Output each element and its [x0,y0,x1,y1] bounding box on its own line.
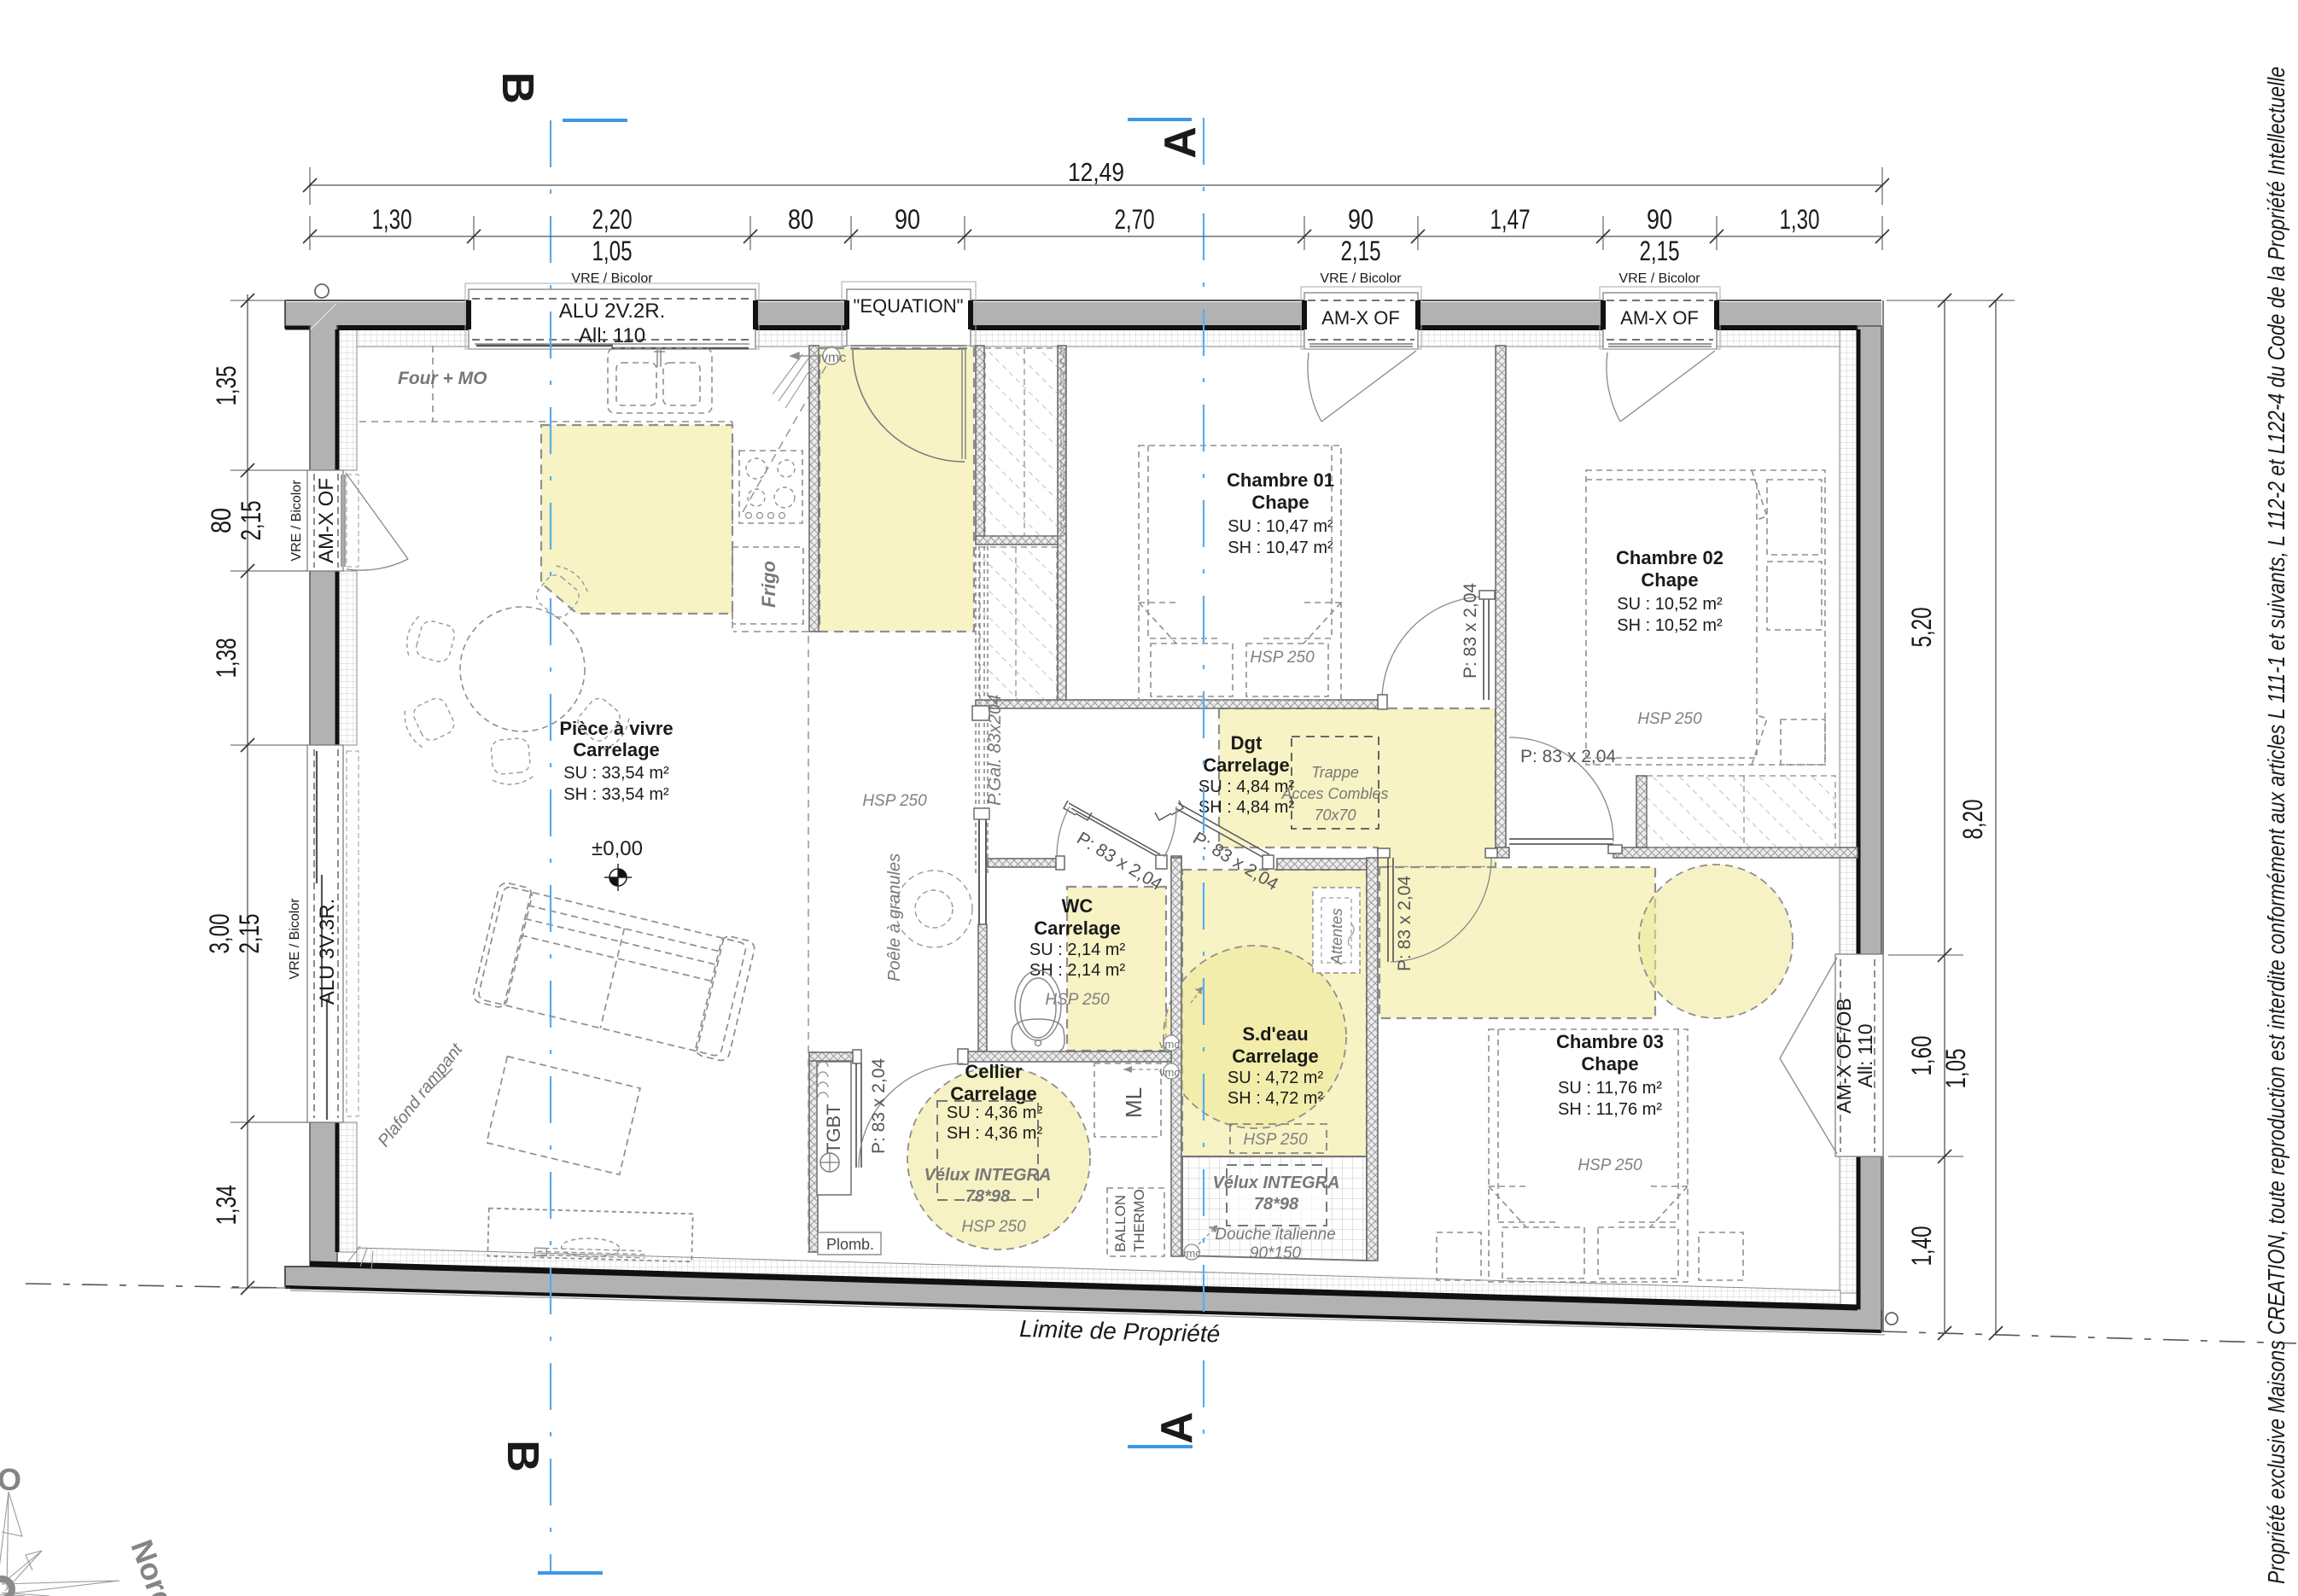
svg-text:SH : 10,47 m²: SH : 10,47 m² [1228,539,1333,557]
svg-text:vmc: vmc [821,351,846,365]
svg-text:A: A [1156,126,1205,159]
svg-text:VRE / Bicolor: VRE / Bicolor [1320,271,1402,286]
svg-text:VRE / Bicolor: VRE / Bicolor [288,898,302,980]
svg-text:P.Gal. 83x204: P.Gal. 83x204 [985,695,1005,806]
svg-text:Carrelage: Carrelage [573,739,660,760]
svg-text:Carrelage: Carrelage [1232,1046,1319,1067]
svg-text:All: 110: All: 110 [1854,1023,1876,1087]
svg-text:HSP 250: HSP 250 [1578,1156,1642,1174]
svg-text:Attentes: Attentes [1328,908,1345,965]
svg-text:2,15: 2,15 [1640,236,1680,266]
svg-text:Chape: Chape [1641,569,1698,591]
svg-text:1,35: 1,35 [211,366,242,406]
svg-text:Douche italienne: Douche italienne [1215,1226,1336,1244]
svg-text:ML: ML [1121,1087,1146,1118]
svg-text:78*98: 78*98 [965,1187,1011,1206]
svg-text:ALU 3V.3R.: ALU 3V.3R. [316,899,339,1005]
svg-text:Chape: Chape [1581,1053,1638,1075]
svg-text:All: 110: All: 110 [579,324,645,347]
svg-text:Four + MO: Four + MO [398,369,487,388]
svg-text:AM-X OF/OB: AM-X OF/OB [1833,998,1855,1113]
svg-text:2,70: 2,70 [1115,204,1155,235]
svg-text:vmc: vmc [1181,1247,1201,1260]
svg-text:Dgt: Dgt [1231,732,1263,754]
svg-text:SH : 10,52 m²: SH : 10,52 m² [1617,616,1723,635]
svg-text:Cellier: Cellier [965,1061,1023,1082]
svg-text:AM-X OF: AM-X OF [1321,307,1400,329]
svg-text:SH : 4,72 m²: SH : 4,72 m² [1228,1089,1324,1108]
svg-text:90: 90 [895,204,920,235]
svg-text:2,15: 2,15 [1341,236,1381,266]
svg-text:Propriété exclusive Maisons CR: Propriété exclusive Maisons CREATION, to… [2263,67,2289,1584]
svg-text:SU : 4,72 m²: SU : 4,72 m² [1228,1069,1324,1087]
svg-text:HSP 250: HSP 250 [1243,1131,1308,1149]
svg-text:12,49: 12,49 [1068,157,1124,187]
svg-text:vmc: vmc [1159,1066,1180,1079]
svg-text:SH : 4,84 m²: SH : 4,84 m² [1199,798,1295,817]
svg-text:SU : 10,52 m²: SU : 10,52 m² [1617,595,1723,614]
svg-text:1,47: 1,47 [1490,204,1531,235]
svg-text:B: B [493,72,542,104]
svg-text:Trappe: Trappe [1311,764,1359,781]
svg-text:Limite de Propriété: Limite de Propriété [1019,1315,1221,1348]
svg-text:B: B [498,1440,547,1472]
svg-text:5,20: 5,20 [1906,608,1937,648]
svg-text:HSP 250: HSP 250 [1250,649,1315,667]
svg-text:VRE / Bicolor: VRE / Bicolor [571,271,653,286]
svg-text:Chambre 01: Chambre 01 [1227,469,1334,491]
svg-text:Chape: Chape [1251,492,1309,513]
svg-text:1,60: 1,60 [1906,1036,1937,1076]
svg-text:Pièce à vivre: Pièce à vivre [559,718,673,739]
svg-text:SH : 33,54 m²: SH : 33,54 m² [563,785,669,804]
svg-text:90: 90 [1348,204,1374,235]
svg-text:Frigo: Frigo [758,561,779,608]
svg-text:"EQUATION": "EQUATION" [854,295,964,317]
svg-text:1,30: 1,30 [1780,204,1820,235]
svg-text:TGBT: TGBT [823,1104,844,1154]
svg-text:ALU 2V.2R.: ALU 2V.2R. [559,300,666,323]
svg-text:8,20: 8,20 [1957,800,1988,840]
svg-text:BALLON: BALLON [1112,1195,1129,1252]
svg-text:80: 80 [206,508,236,533]
svg-text:1,05: 1,05 [1940,1049,1971,1089]
svg-text:80: 80 [788,204,814,235]
svg-text:90: 90 [1647,204,1672,235]
svg-text:VRE / Bicolor: VRE / Bicolor [1619,271,1700,286]
svg-text:O: O [0,1462,21,1497]
svg-text:Carrelage: Carrelage [1034,917,1121,939]
svg-text:A: A [1152,1412,1202,1444]
svg-text:SH : 11,76 m²: SH : 11,76 m² [1558,1100,1662,1119]
svg-text:Plomb.: Plomb. [826,1236,874,1253]
svg-text:HSP 250: HSP 250 [961,1218,1026,1236]
svg-text:90*150: 90*150 [1250,1244,1302,1262]
svg-text:Acces Combles: Acces Combles [1280,785,1388,802]
svg-text:AM-X OF: AM-X OF [315,478,338,563]
svg-text:P: 83 x 2,04: P: 83 x 2,04 [1461,583,1480,679]
svg-text:1,30: 1,30 [372,204,412,235]
svg-text:78*98: 78*98 [1254,1195,1299,1214]
svg-text:Carrelage: Carrelage [1203,754,1290,776]
svg-text:Poêle à granules: Poêle à granules [885,853,904,981]
svg-text:1,40: 1,40 [1906,1226,1937,1267]
svg-text:SU : 10,47 m²: SU : 10,47 m² [1228,517,1333,536]
svg-text:Chambre 02: Chambre 02 [1616,547,1723,568]
svg-text:VRE / Bicolor: VRE / Bicolor [289,480,304,562]
svg-text:1,38: 1,38 [211,638,242,679]
svg-text:SU : 2,14 m²: SU : 2,14 m² [1029,941,1126,959]
svg-text:Vélux INTEGRA: Vélux INTEGRA [1213,1174,1340,1192]
svg-text:2,20: 2,20 [592,204,633,235]
svg-text:HSP 250: HSP 250 [1637,710,1702,728]
svg-text:1,34: 1,34 [211,1185,242,1226]
svg-text:P: 83 x 2,04: P: 83 x 2,04 [869,1058,889,1154]
svg-text:2,15: 2,15 [234,914,265,954]
svg-text:P: 83 x 2,04: P: 83 x 2,04 [1395,876,1414,971]
svg-text:70x70: 70x70 [1314,807,1356,824]
svg-text:SH : 2,14 m²: SH : 2,14 m² [1029,961,1126,980]
svg-text:Vélux INTEGRA: Vélux INTEGRA [924,1166,1052,1185]
svg-text:THERMO: THERMO [1131,1189,1147,1252]
svg-text:SU : 33,54 m²: SU : 33,54 m² [563,764,669,783]
svg-text:WC: WC [1062,895,1094,917]
svg-text:SU : 4,84 m²: SU : 4,84 m² [1199,778,1295,796]
svg-text:1,05: 1,05 [592,236,633,266]
svg-text:±0,00: ±0,00 [592,837,643,860]
svg-text:vmc: vmc [1159,1038,1180,1051]
svg-text:Chambre 03: Chambre 03 [1556,1031,1664,1052]
svg-text:AM-X OF: AM-X OF [1620,307,1699,329]
svg-text:SH : 4,36 m²: SH : 4,36 m² [947,1124,1043,1143]
svg-text:SU : 11,76 m²: SU : 11,76 m² [1558,1079,1662,1098]
svg-text:P: 83 x 2,04: P: 83 x 2,04 [1520,747,1616,766]
svg-text:S.d'eau: S.d'eau [1242,1023,1308,1045]
svg-text:SU : 4,36 m²: SU : 4,36 m² [947,1104,1043,1122]
svg-text:3,00: 3,00 [204,914,235,954]
svg-text:2,15: 2,15 [236,501,266,541]
svg-text:HSP 250: HSP 250 [862,792,927,810]
